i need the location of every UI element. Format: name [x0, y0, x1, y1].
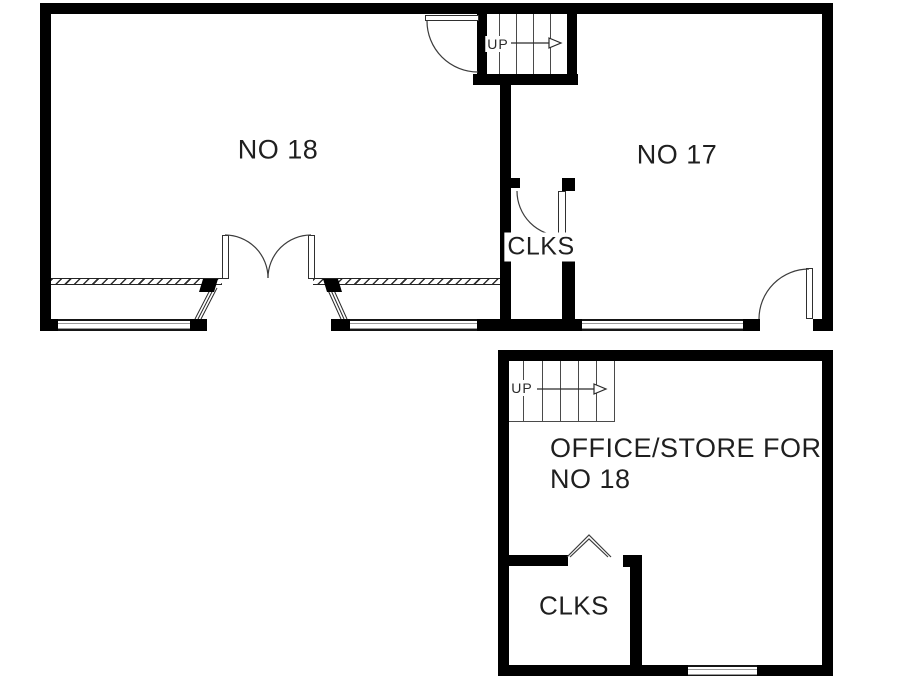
stair-tread: [560, 361, 561, 421]
wall-upper-left: [40, 3, 51, 331]
angled-glazing-line: [330, 288, 344, 319]
double-door-right-arc: [268, 235, 311, 278]
shopfront-hatch: [51, 278, 222, 285]
room-label-office-store-line1: OFFICE/STORE FOR: [550, 433, 822, 464]
angled-glazing-line: [327, 288, 341, 319]
clks-door-jamb: [511, 178, 520, 188]
wall-bottom-segment: [331, 319, 350, 331]
plan-linework-overlay: [0, 0, 898, 683]
clks-door-leaf: [558, 191, 566, 235]
wall-upper-right: [822, 3, 833, 331]
wall-bottom-segment: [190, 319, 207, 331]
angled-glazing-line: [201, 288, 217, 319]
wall-lower-bottom-segment: [498, 665, 688, 676]
shopfront-hatch: [313, 278, 500, 285]
angled-glazing-line: [333, 288, 347, 319]
lower-clks-wall-top: [509, 555, 568, 566]
wall-lower-left: [498, 350, 509, 676]
stair-tread: [550, 14, 551, 74]
room-label-office-store-line2: NO 18: [550, 464, 822, 495]
lower-clks-door-inner: [570, 539, 608, 557]
stair-tread: [533, 14, 534, 74]
wall-bottom-segment: [40, 319, 58, 331]
stair-tread: [596, 361, 597, 421]
wall-bottom-segment: [743, 319, 760, 331]
stair-wall-bottom: [473, 74, 578, 85]
lower-clks-wall-right: [630, 555, 642, 676]
clks-door-swing-arc: [517, 191, 562, 236]
room-label-office-store: OFFICE/STORE FOR NO 18: [550, 433, 822, 495]
stair-tread: [542, 361, 543, 421]
wall-bottom-segment: [813, 319, 833, 331]
stairs-up-label-lower: UP: [509, 380, 534, 396]
wall-upper-top: [40, 3, 833, 14]
floor-plan-canvas: NO 18 NO 17 CLKS UP OFFICE/STORE FOR NO …: [0, 0, 898, 683]
stair-edge: [614, 361, 615, 422]
double-door-left-arc: [225, 235, 268, 278]
wall-lower-bottom-segment: [757, 665, 833, 676]
stair-door-swing-arc: [427, 21, 478, 72]
room-label-no18: NO 18: [238, 135, 319, 166]
wall-divider-no18-no17: [500, 85, 511, 319]
room-label-clks-lower: CLKS: [539, 591, 609, 622]
room-label-clks-upper: CLKS: [504, 233, 577, 262]
wall-lower-top: [498, 350, 833, 361]
stair-wall-right: [567, 14, 577, 75]
rear-window: [688, 665, 757, 676]
stair-tread: [578, 361, 579, 421]
stair-edge: [509, 421, 615, 422]
shop-window: [582, 319, 743, 331]
shop-window: [58, 319, 190, 331]
angled-glazing-line: [195, 288, 211, 319]
double-door-left-leaf: [222, 235, 229, 279]
no17-entrance-door-leaf: [806, 268, 813, 319]
clks-door-hinge-jamb: [562, 178, 575, 191]
angled-glazing-line: [198, 288, 214, 319]
stair-door-leaf: [425, 15, 479, 21]
wall-bottom-segment: [477, 319, 582, 331]
no17-door-swing-arc: [759, 269, 809, 319]
stair-tread: [516, 14, 517, 74]
wall-lower-right: [822, 350, 833, 676]
double-door-right-leaf: [308, 235, 315, 279]
lower-clks-door-outer: [567, 535, 611, 557]
stairs-up-label-upper: UP: [485, 36, 510, 52]
shop-window: [350, 319, 477, 331]
room-label-no17: NO 17: [637, 140, 718, 171]
